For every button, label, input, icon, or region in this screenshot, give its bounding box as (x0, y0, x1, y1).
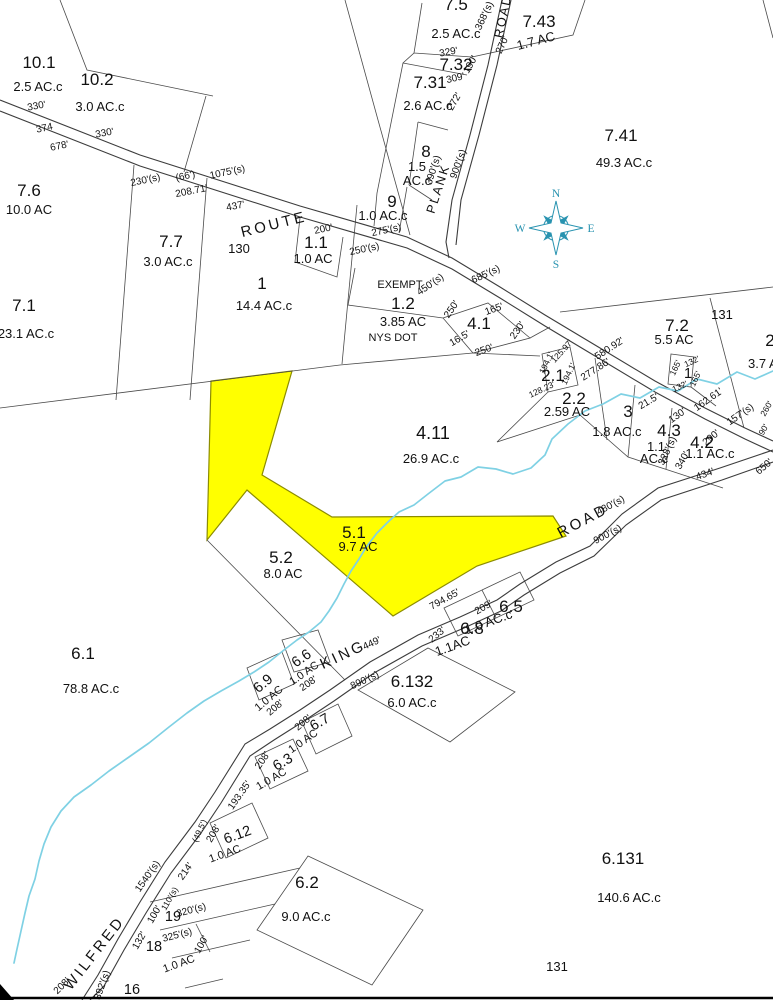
boundary-topright (472, 0, 773, 428)
dim-320s: 320'(s) (175, 901, 207, 919)
compass-s-label: S (553, 259, 559, 271)
parcel-5-1-acreage: 9.7 AC (338, 539, 377, 554)
parcel-5-2-acreage: 8.0 AC (263, 566, 302, 581)
parcel-16-number: 16 (124, 982, 140, 998)
parcel-4-2-acreage: 1.1 AC.c (685, 446, 735, 461)
parcel-6-1-acreage: 78.8 AC.c (63, 681, 120, 696)
parcel-1-2-acreage: 3.85 AC (380, 314, 426, 329)
dim-685s: 685'(s) (470, 263, 502, 286)
dim-330-a: 330' (26, 99, 46, 113)
parcel-6-12-acreage: 1.0 AC (207, 843, 242, 866)
parcel-6-2-number: 6.2 (295, 873, 319, 892)
parcel-1-acreage: 14.4 AC.c (236, 298, 293, 313)
dim-260: 260' (758, 399, 773, 418)
parcel-7-5-acreage: 2.5 AC.c (431, 26, 481, 41)
compass-w-label: W (515, 223, 526, 235)
boundary-king-parcels (210, 572, 534, 985)
compass-rose: N E S W (515, 188, 595, 271)
parcel-2-2-acreage: 2.59 AC (544, 404, 590, 419)
parcel-10-2-acreage: 3.0 AC.c (75, 99, 125, 114)
tax-parcel-map: N E S W 10.12.5 AC.c10.23.0 AC.c330'3746… (0, 0, 773, 1000)
parcel-3-acreage: 1.8 AC.c (592, 424, 642, 439)
parcel-1-1-number: 1.1 (304, 233, 328, 252)
dim-900s-a: 900'(s) (448, 148, 469, 180)
dim-165-c: 165' (667, 358, 683, 377)
parcel-4-11-number: 4.11 (416, 423, 450, 443)
compass-n-label: N (552, 188, 561, 200)
parcel-7-43-acreage: 1.7 AC (515, 28, 557, 53)
parcel-6-132-acreage: 6.0 AC.c (387, 695, 437, 710)
ref-131-bottom: 131 (546, 959, 568, 974)
parcel-9-acreage: 1.0 AC.c (358, 208, 408, 223)
dim-214: 214' (176, 861, 196, 883)
dim-66: (66') (175, 169, 197, 184)
compass-cardinal-star (529, 201, 583, 255)
dim-580-92: 580.92' (593, 335, 626, 362)
dim-208-71: 208.71' (175, 183, 209, 200)
dim-1075s: 1075'(s) (209, 163, 246, 181)
parcel-6-131-acreage: 140.6 AC.c (597, 890, 661, 905)
parcel-10-2-number: 10.2 (80, 70, 113, 89)
parcel-4-1-number: 4.1 (467, 314, 491, 333)
parcel-4-11-acreage: 26.9 AC.c (403, 451, 460, 466)
dim-374: 374 (35, 121, 54, 135)
dim-434: 434' (695, 466, 716, 483)
parcel-7-41-acreage: 49.3 AC.c (596, 155, 653, 170)
parcel-5-2-number: 5.2 (269, 548, 293, 567)
dim-437: 437' (225, 199, 245, 213)
parcel-7-2-acreage: 5.5 AC (654, 332, 693, 347)
parcel-2-acreage: 3.7 AC.c (748, 356, 773, 371)
parcel-6-132-number: 6.132 (391, 672, 434, 691)
parcel-6-131-number: 6.131 (602, 849, 645, 868)
parcel-1-number: 1 (257, 274, 266, 293)
dim-100-b: 100' (192, 934, 211, 956)
dim-275s: 275'(s) (371, 222, 403, 239)
dim-157s: 157'(s) (725, 402, 756, 428)
parcel-7-6-acreage: 10.0 AC (6, 202, 52, 217)
dim-450s: 450'(s) (415, 272, 446, 298)
parcel-10-1-number: 10.1 (22, 53, 55, 72)
dim-193-35: 193.35' (226, 779, 254, 812)
parcel-18-number: 18 (146, 939, 162, 955)
dim-678: 678' (49, 139, 70, 154)
parcel-map-canvas: N E S W 10.12.5 AC.c10.23.0 AC.c330'3746… (0, 0, 773, 1000)
parcel-1-1-acreage: 1.0 AC (293, 251, 332, 266)
parcel-7-1-acreage: 23.1 AC.c (0, 326, 55, 341)
dim-650: 650' (754, 457, 773, 477)
parcel-boundaries (0, 0, 773, 988)
dim-250-b: 250' (474, 342, 495, 359)
ref-131-top: 131 (711, 307, 733, 322)
highlighted-parcel-5-1[interactable] (207, 371, 566, 616)
dim-21-5: 21.5' (637, 392, 661, 412)
parcel-7-7-acreage: 3.0 AC.c (143, 254, 193, 269)
dim-208-e: 208' (204, 823, 223, 845)
parcel-1-2-number: 1.2 (391, 294, 415, 313)
parcel-2-number: 2 (765, 331, 773, 350)
dim-392s: 392'(s) (92, 969, 113, 1000)
compass-e-label: E (587, 223, 594, 235)
parcel-7-6-number: 7.6 (17, 181, 41, 200)
dim-330-b: 330' (94, 126, 114, 140)
parcel-3-number: 3 (623, 402, 632, 421)
parcel-1-2-tag-nysdot: NYS DOT (369, 332, 418, 344)
ref-130: 130 (228, 241, 250, 256)
parcel-6-1-number: 6.1 (71, 644, 95, 663)
dim-325s: 325'(s) (161, 926, 193, 944)
parcel-7-5-number: 7.5 (444, 0, 468, 14)
dim-230-a: 230' (508, 320, 528, 342)
parcel-8-acreage-1: 1.5 (408, 159, 426, 174)
parcel-7-41-number: 7.41 (604, 126, 637, 145)
dim-449: 449' (361, 635, 383, 653)
dim-272: 272' (445, 91, 464, 113)
parcel-10-1-acreage: 2.5 AC.c (13, 79, 63, 94)
dim-230s: 230'(s) (130, 172, 162, 189)
dim-250-a: 250' (442, 299, 462, 321)
parcel-7-1-number: 7.1 (12, 296, 36, 315)
parcel-6-2-acreage: 9.0 AC.c (281, 909, 331, 924)
boundary-topleft-block (60, 0, 410, 235)
parcel-7-7-number: 7.7 (159, 232, 183, 251)
parcel-7-31-number: 7.31 (413, 73, 446, 92)
